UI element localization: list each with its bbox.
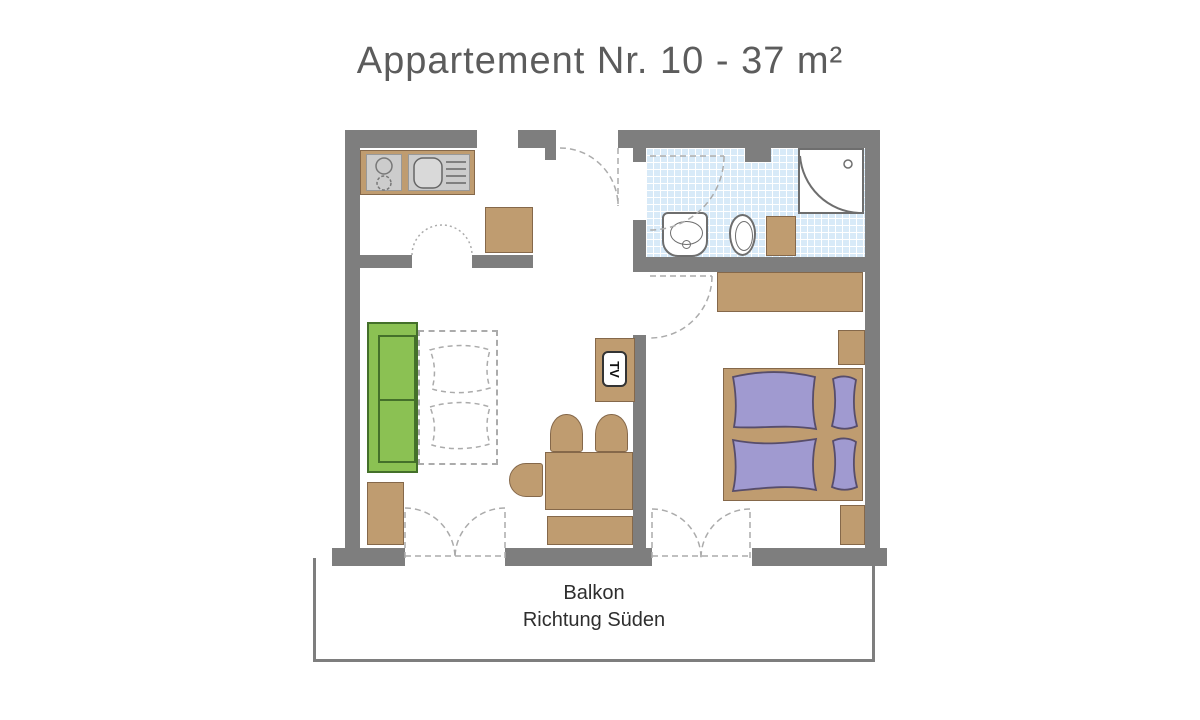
bedroom-door-swing-arc: [650, 276, 712, 338]
living-balcony-door-arc-right: [455, 508, 505, 558]
bedroom-balcony-door-arc-right: [701, 509, 750, 558]
entry-door-swing-arc: [560, 148, 618, 206]
bed-blanket-1: [733, 372, 816, 429]
bathroom-door-swing-arc: [650, 156, 724, 230]
foldout-cushion-2: [430, 403, 490, 449]
sink-drainer-lines: [446, 162, 466, 183]
bed-pillow-1: [832, 376, 857, 428]
stove-burner-2: [377, 176, 391, 190]
plan-overlay: [0, 0, 1200, 720]
bed-blanket-2: [733, 439, 816, 491]
living-balcony-door-arc-left: [405, 508, 455, 558]
bed-pillow-2: [832, 438, 857, 489]
hall-door-swing-arc: [412, 225, 472, 255]
bedroom-balcony-door-arc-left: [652, 509, 701, 558]
floor-plan: Appartement Nr. 10 - 37 m² Balkon Richtu…: [0, 0, 1200, 720]
stove-burner-1: [376, 158, 392, 174]
sink-basin: [414, 158, 442, 188]
foldout-cushion-1: [430, 346, 490, 393]
shower-drain: [844, 160, 852, 168]
